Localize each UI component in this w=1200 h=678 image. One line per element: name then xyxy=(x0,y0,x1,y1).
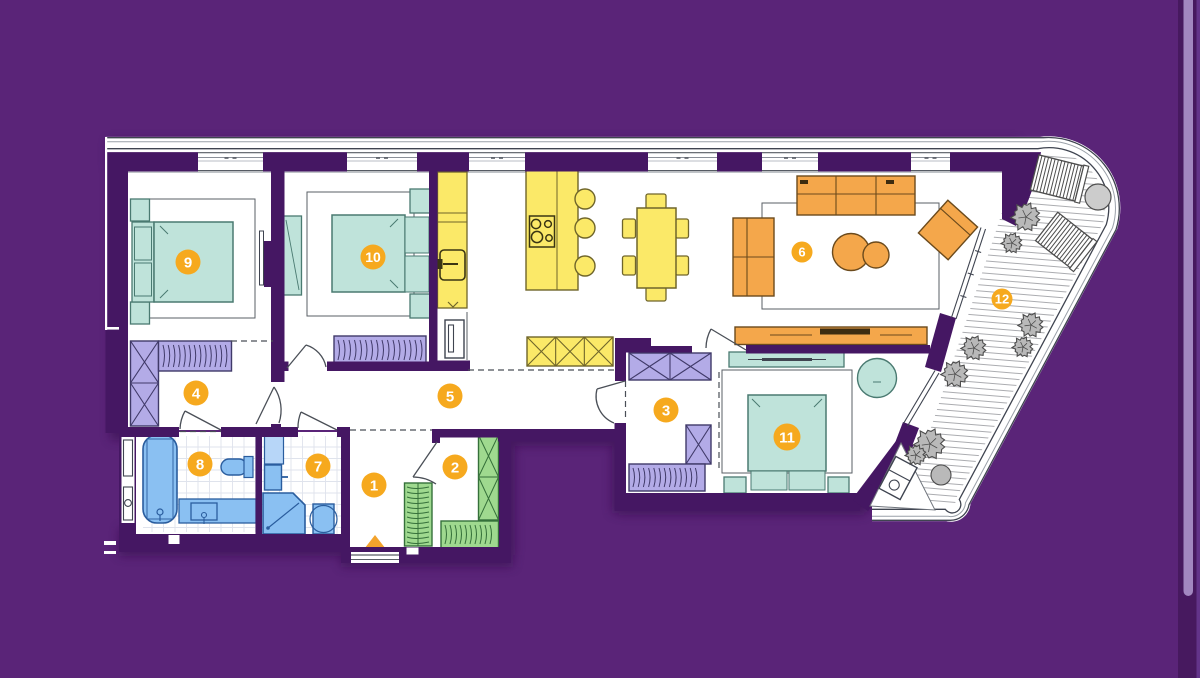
svg-text:7: 7 xyxy=(314,458,322,475)
svg-text:5: 5 xyxy=(446,388,454,405)
svg-text:6: 6 xyxy=(798,245,805,260)
svg-text:10: 10 xyxy=(365,249,381,265)
svg-text:2: 2 xyxy=(451,459,459,476)
svg-text:1: 1 xyxy=(370,477,378,494)
svg-text:3: 3 xyxy=(662,402,670,419)
svg-text:4: 4 xyxy=(192,385,201,402)
svg-text:9: 9 xyxy=(184,254,192,271)
svg-text:8: 8 xyxy=(196,456,204,473)
svg-text:11: 11 xyxy=(779,429,795,446)
svg-text:12: 12 xyxy=(995,292,1009,307)
